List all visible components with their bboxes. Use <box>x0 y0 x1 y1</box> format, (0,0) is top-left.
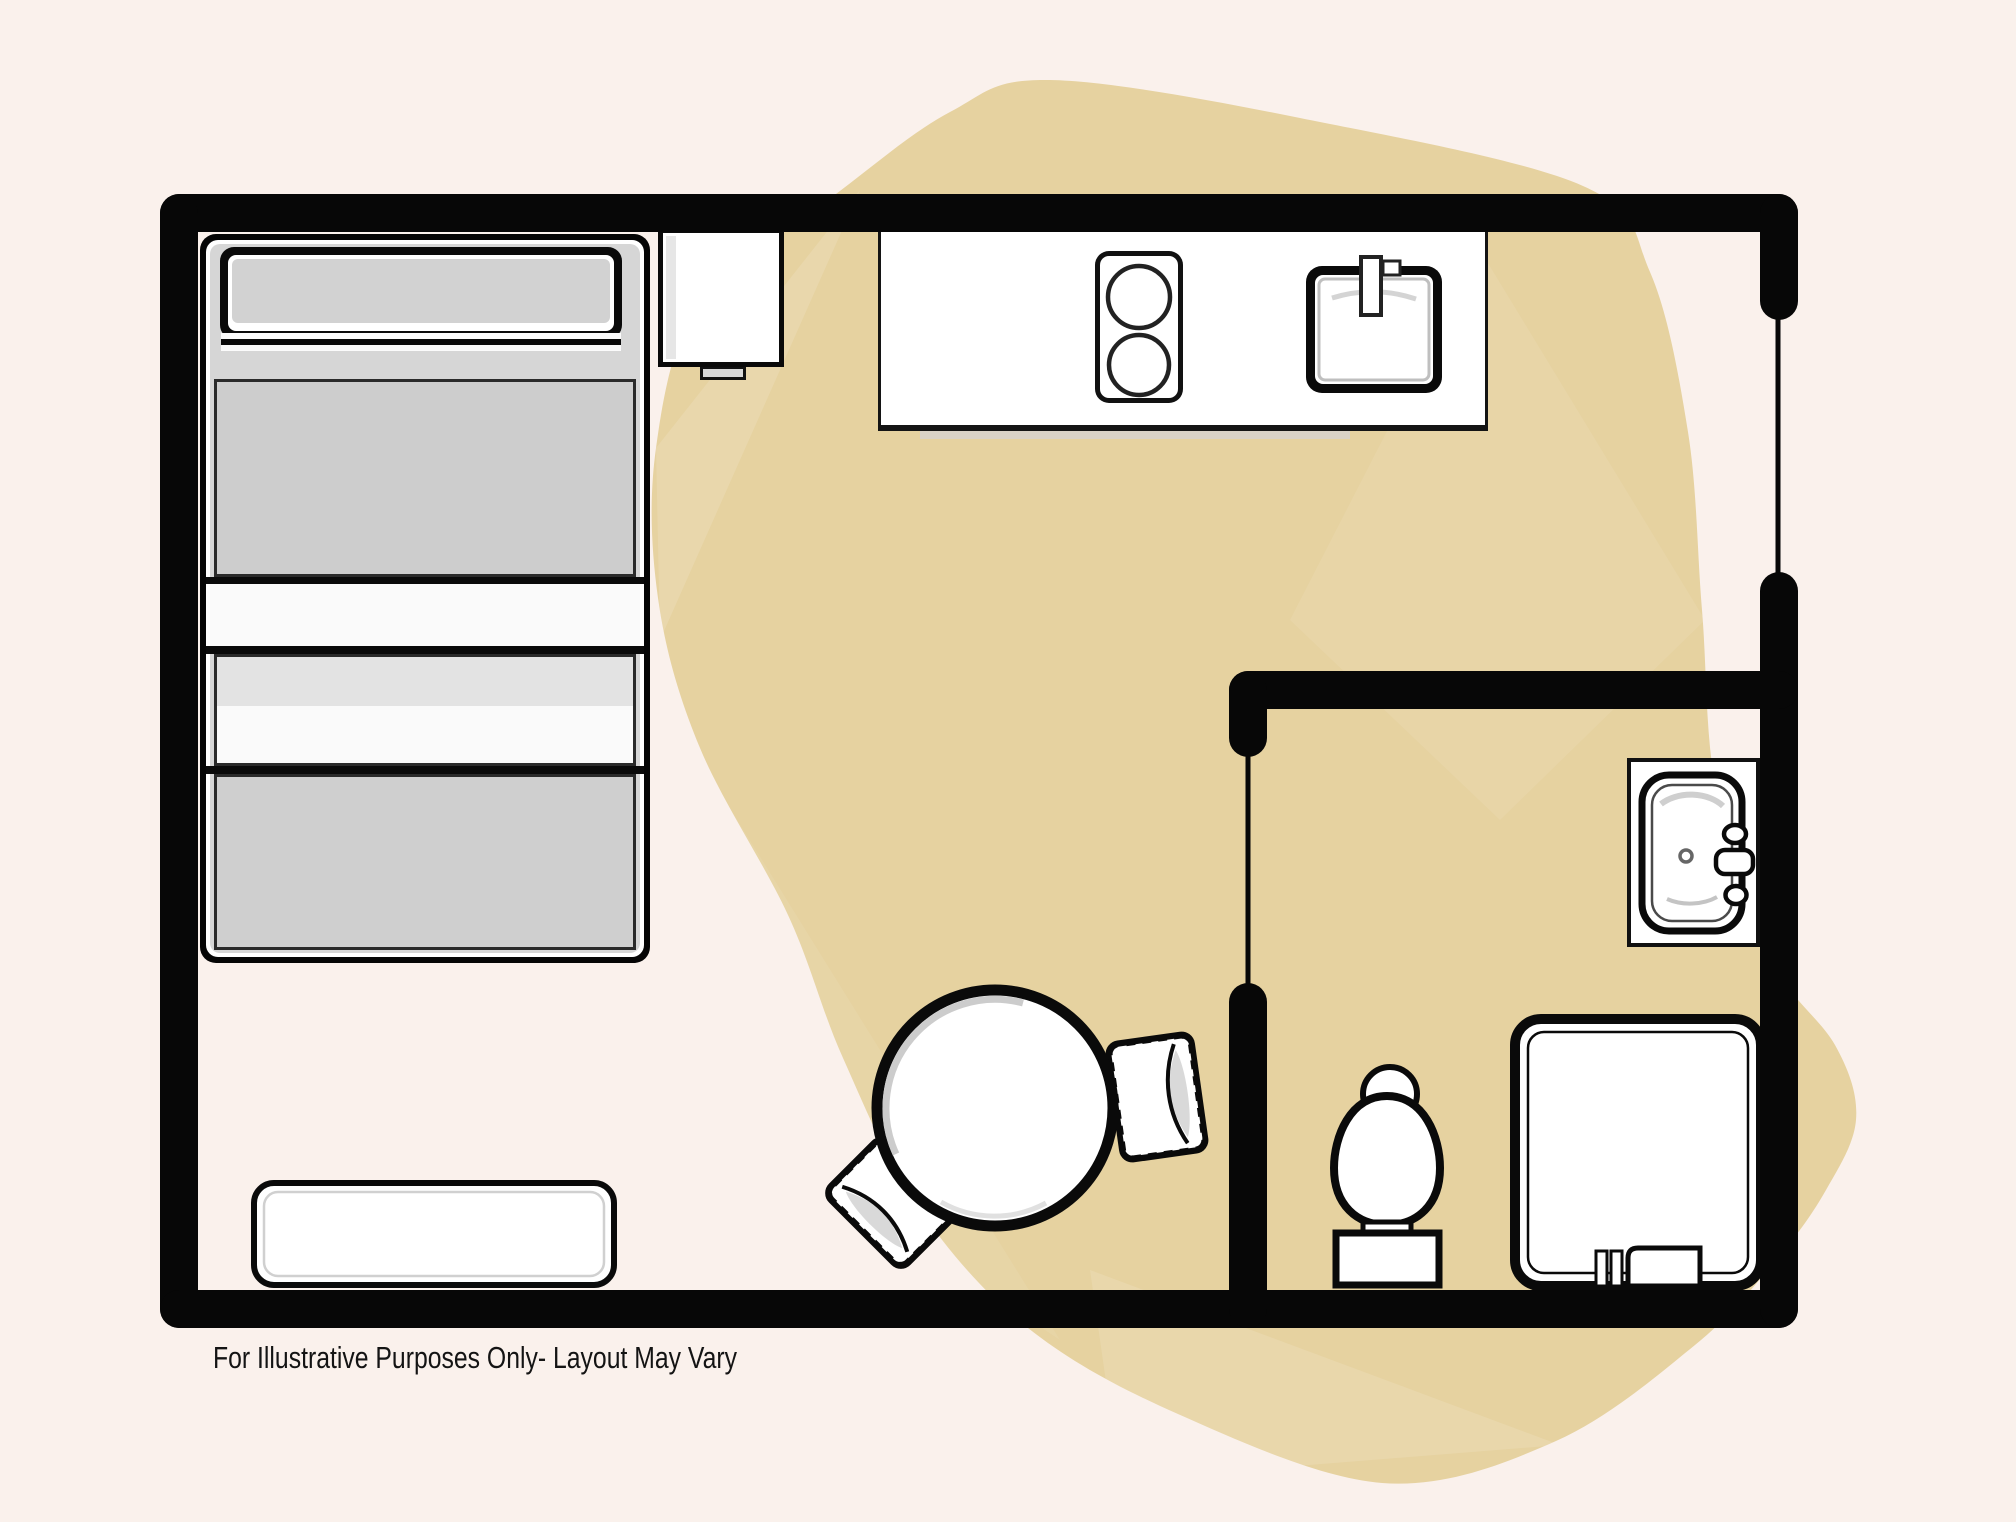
svg-text:For Illustrative Purposes Only: For Illustrative Purposes Only- Layout M… <box>213 1340 737 1375</box>
